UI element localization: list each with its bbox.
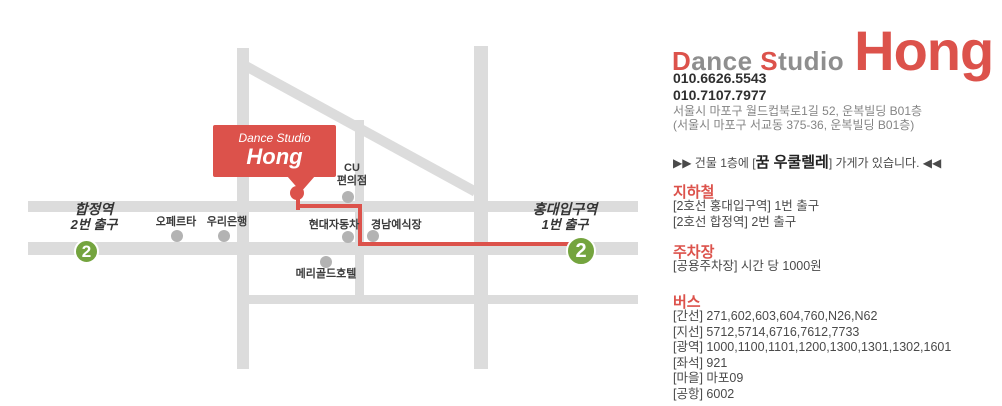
notice-prefix: ▶▶ 건물 1층에 [ — [673, 156, 756, 170]
station-hongdae: 홍대입구역 1번 출구 — [515, 201, 615, 232]
phone-number-2: 010.7107.7977 — [673, 87, 766, 104]
bus-item: [공항] 6002 — [673, 387, 951, 403]
station-hapjeong-name: 합정역 — [49, 201, 139, 217]
brand-rest2: tudio — [778, 46, 844, 76]
poi-label-hotel: 메리골드호텔 — [291, 268, 361, 281]
subway-line2-badge-hapjeong: 2 — [74, 239, 99, 264]
poi-label-woori-bank: 우리은행 — [197, 216, 257, 229]
poi-dot-woori-bank — [218, 230, 230, 242]
station-hongdae-name: 홍대입구역 — [515, 201, 615, 217]
bus-item: [지선] 5712,5714,6716,7612,7733 — [673, 325, 951, 341]
marker-line2: Hong — [213, 145, 336, 169]
subway-line2-badge-hongdae: 2 — [566, 236, 596, 266]
first-floor-notice: ▶▶ 건물 1층에 [꿈 우쿨렐레] 가게가 있습니다. ◀◀ — [673, 151, 941, 172]
info-panel: Dance Studio Hong 010.6626.5543 010.7107… — [672, 0, 1002, 406]
page: 오페르타 우리은행 현대자동차 경남예식장 메리골드호텔 CU 편의점 합정역 … — [0, 0, 1002, 406]
road-vertical-left — [237, 48, 249, 369]
road-horizontal-bottom — [243, 295, 638, 304]
parking-item: [공용주차장] 시간 당 1000원 — [673, 259, 822, 275]
poi-label-wedding-hall: 경남예식장 — [371, 219, 451, 232]
station-hapjeong-exit: 2번 출구 — [49, 217, 139, 232]
poi-dot-hyundai-motor — [342, 231, 354, 243]
route-segment — [296, 204, 362, 208]
road-vertical-right — [474, 46, 488, 369]
notice-highlight: 꿈 우쿨렐레 — [756, 154, 829, 171]
address-lot: (서울시 마포구 서교동 375-36, 운복빌딩 B01층) — [673, 118, 922, 132]
bus-item: [좌석] 921 — [673, 356, 951, 372]
notice-suffix: ] 가게가 있습니다. ◀◀ — [829, 156, 941, 170]
address-block: 서울시 마포구 월드컵북로1길 52, 운복빌딩 B01층 (서울시 마포구 서… — [673, 104, 922, 132]
studio-location-dot — [290, 186, 304, 200]
poi-dot-hotel — [320, 256, 332, 268]
address-road: 서울시 마포구 월드컵북로1길 52, 운복빌딩 B01층 — [673, 104, 922, 118]
poi-label-hyundai-motor: 현대자동차 — [299, 219, 369, 232]
bus-item: [광역] 1000,1100,1101,1200,1300,1301,1302,… — [673, 340, 951, 356]
location-map: 오페르타 우리은행 현대자동차 경남예식장 메리골드호텔 CU 편의점 합정역 … — [0, 0, 660, 406]
marker-line1: Dance Studio — [213, 131, 336, 145]
route-segment — [358, 242, 580, 246]
poi-dot-opereta — [171, 230, 183, 242]
bus-item: [마을] 마포09 — [673, 371, 951, 387]
parking-list: [공용주차장] 시간 당 1000원 — [673, 259, 822, 275]
subway-item: [2호선 합정역] 2번 출구 — [673, 215, 819, 231]
subway-item: [2호선 홍대입구역] 1번 출구 — [673, 199, 819, 215]
station-hongdae-exit: 1번 출구 — [515, 217, 615, 232]
subway-list: [2호선 홍대입구역] 1번 출구 [2호선 합정역] 2번 출구 — [673, 199, 819, 230]
brand-name: Hong — [854, 18, 993, 83]
bus-list: [간선] 271,602,603,604,760,N26,N62 [지선] 57… — [673, 309, 951, 402]
station-hapjeong: 합정역 2번 출구 — [49, 201, 139, 232]
studio-map-marker: Dance Studio Hong — [213, 125, 336, 177]
poi-dot-cu-store — [342, 191, 354, 203]
phone-number-1: 010.6626.5543 — [673, 70, 766, 87]
phone-numbers: 010.6626.5543 010.7107.7977 — [673, 70, 766, 104]
bus-item: [간선] 271,602,603,604,760,N26,N62 — [673, 309, 951, 325]
